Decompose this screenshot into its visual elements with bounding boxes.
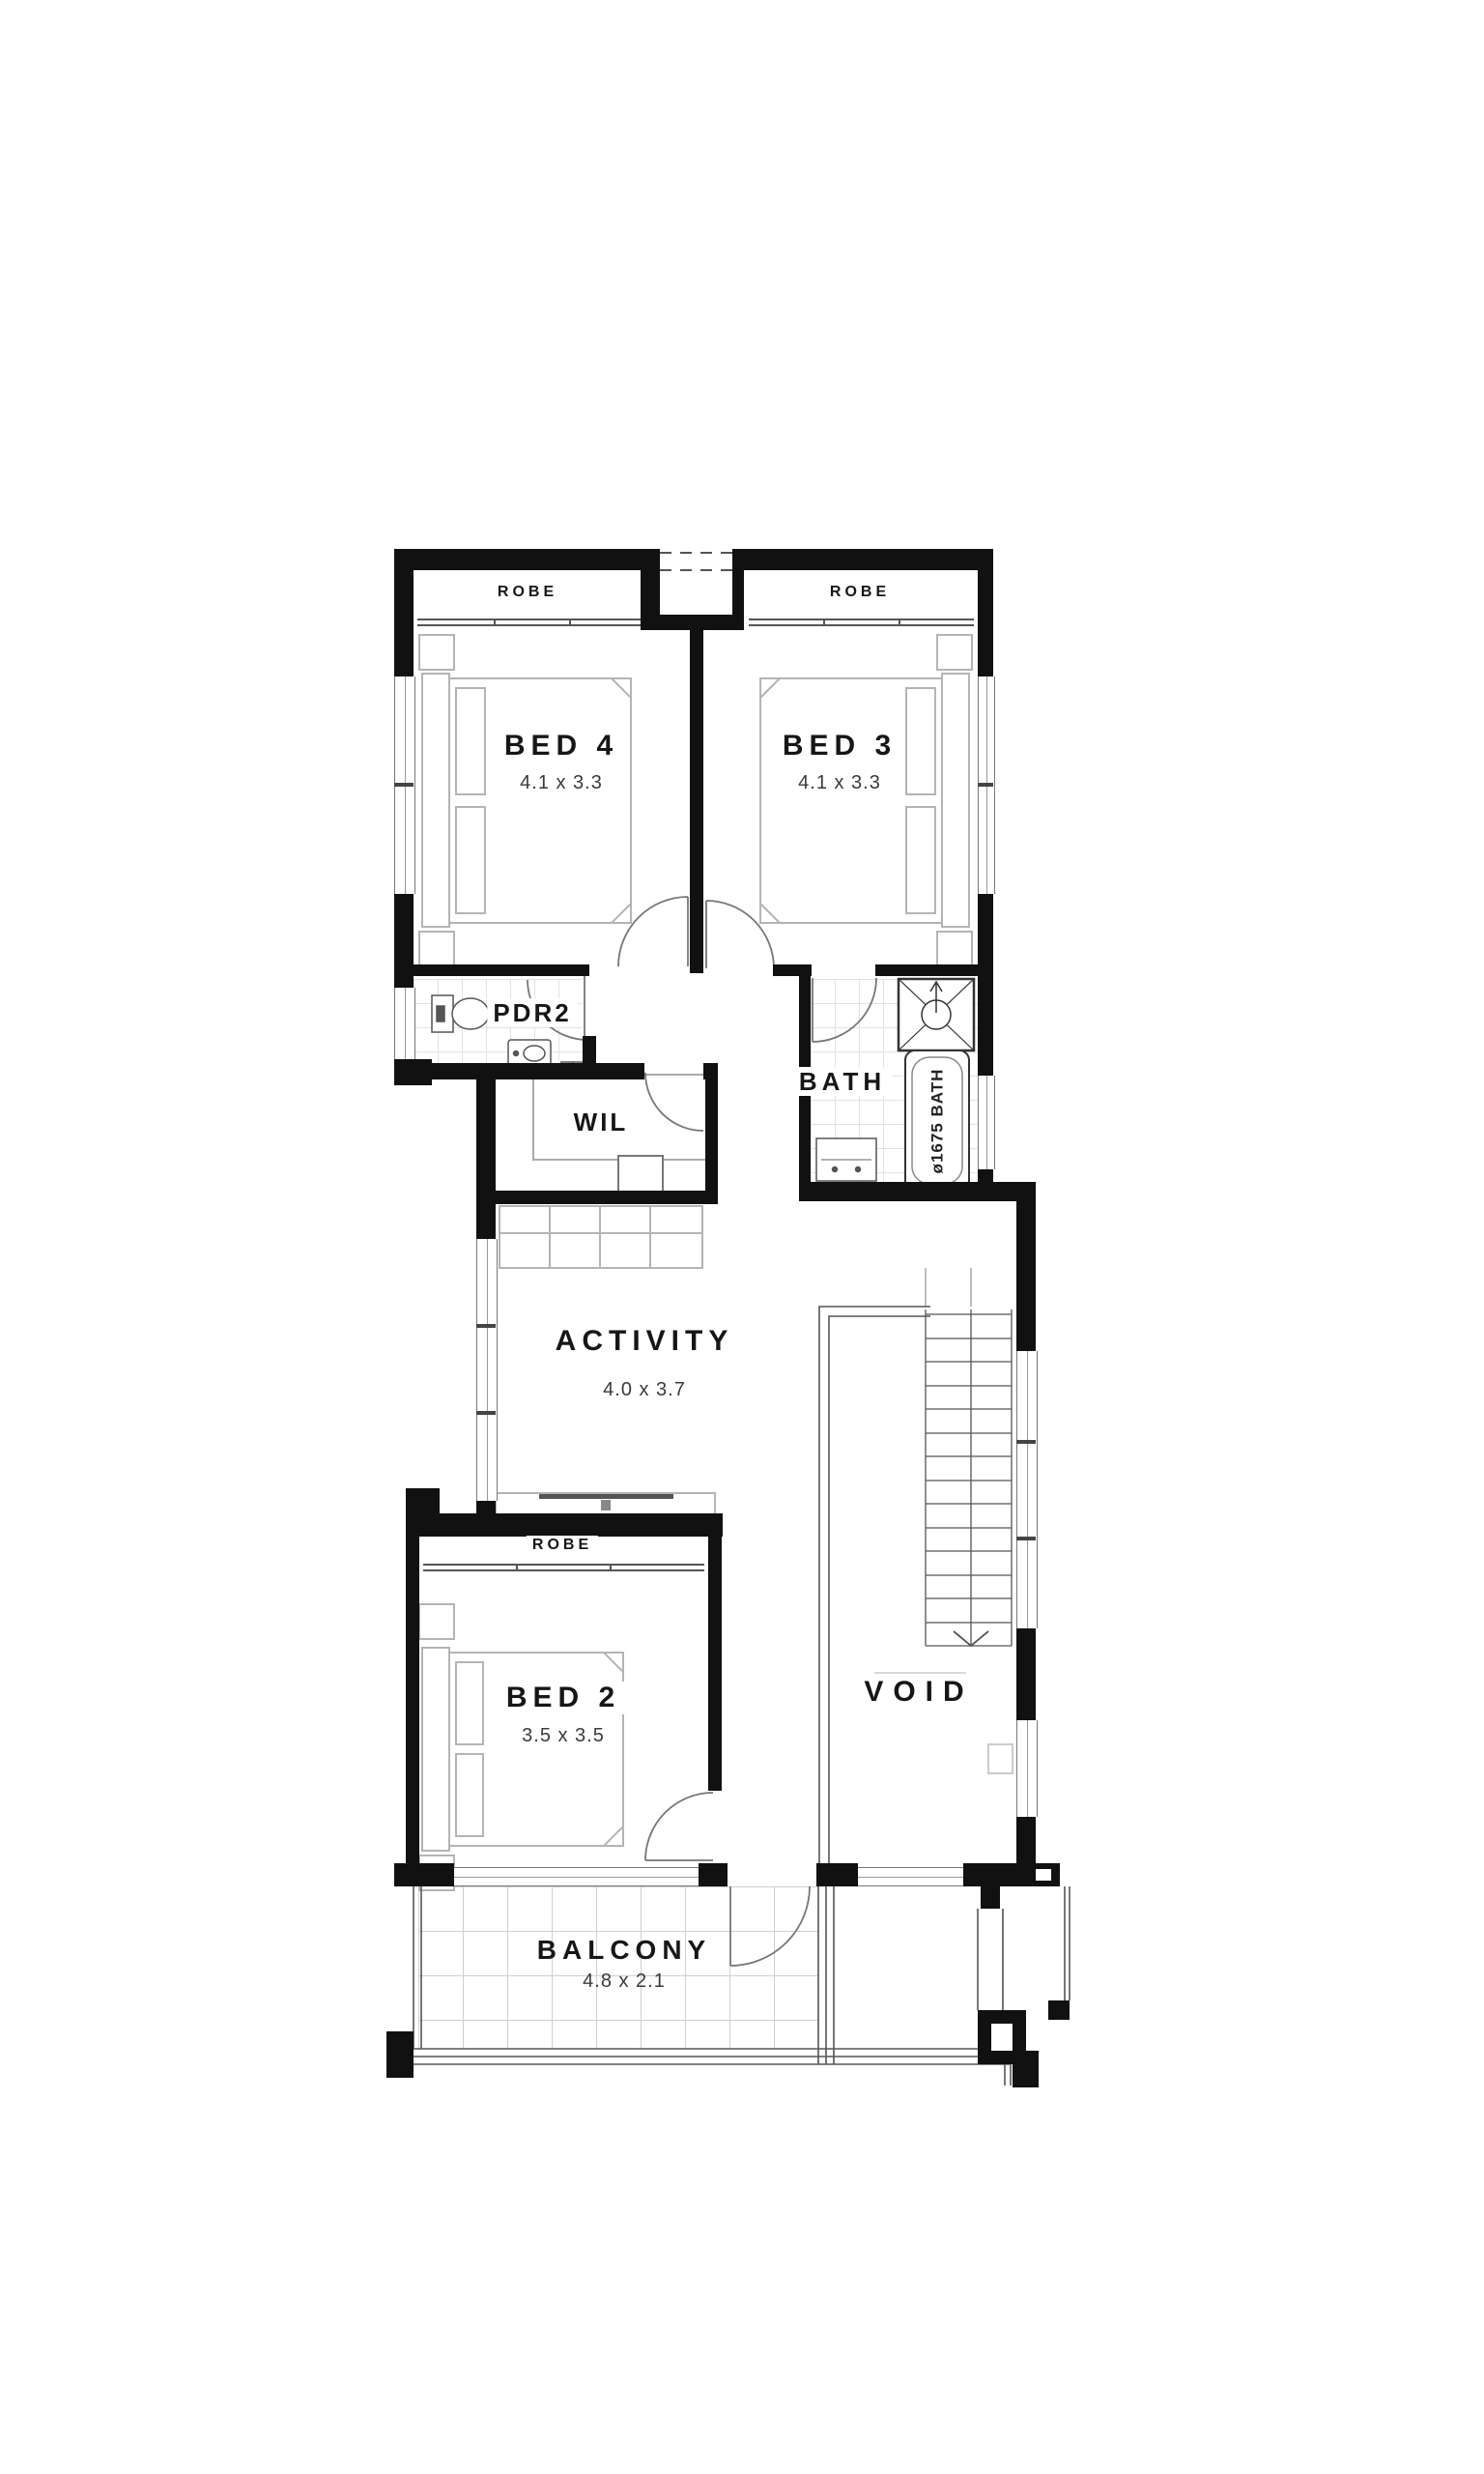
bath-vanity xyxy=(816,1138,876,1181)
room-label-bed4: BED 4 xyxy=(499,730,624,762)
void-window xyxy=(1016,1720,1038,1817)
robe-label-bed2: ROBE xyxy=(527,1536,598,1555)
room-dims-bed3: 4.1 x 3.3 xyxy=(793,772,886,793)
bed2-low-window xyxy=(454,1867,699,1886)
linework-layer xyxy=(0,0,1484,2474)
toilet xyxy=(432,995,489,1032)
bathtub-label: ø1675 BATH xyxy=(929,1069,946,1174)
robe-label-bed4: ROBE xyxy=(492,583,563,602)
niche-dashed-lines xyxy=(660,553,732,570)
room-label-activity: ACTIVITY xyxy=(550,1325,740,1358)
shower xyxy=(899,979,974,1050)
activity-window xyxy=(476,1239,498,1501)
void-low-window xyxy=(858,1867,963,1886)
room-label-bed3: BED 3 xyxy=(777,730,902,762)
pdr2-window xyxy=(394,988,415,1059)
stairs xyxy=(926,1268,1012,1646)
room-dims-bed4: 4.1 x 3.3 xyxy=(515,772,608,793)
pillar-notch xyxy=(991,2024,1013,2051)
room-dims-bed2: 3.5 x 3.5 xyxy=(517,1725,610,1746)
wall-notch xyxy=(1036,1869,1051,1881)
bed2-door xyxy=(645,1793,713,1860)
room-label-balcony: BALCONY xyxy=(531,1935,717,1966)
bath-door xyxy=(813,978,876,1042)
room-label-wil: WIL xyxy=(568,1108,635,1136)
stair-window xyxy=(1016,1351,1038,1628)
room-label-bed2: BED 2 xyxy=(500,1682,626,1714)
room-label-bath: BATH xyxy=(793,1067,892,1096)
room-dims-balcony: 4.8 x 2.1 xyxy=(578,1971,671,1992)
balcony-balustrade xyxy=(414,1886,1011,2086)
bath-window xyxy=(978,1076,995,1169)
sofa xyxy=(499,1206,702,1268)
room-label-pdr2: PDR2 xyxy=(487,998,577,1027)
stair-void-balustrade xyxy=(819,1307,930,1863)
robe-label-bed3: ROBE xyxy=(824,583,896,602)
room-dims-activity: 4.0 x 3.7 xyxy=(598,1379,691,1400)
balcony-door xyxy=(730,1886,810,1966)
wil-door xyxy=(645,1073,703,1131)
floor-plan: ROBE ROBE BED 4 4.1 x 3.3 BED 3 4.1 x 3.… xyxy=(0,0,1484,2474)
room-label-void: VOID xyxy=(858,1676,979,1709)
